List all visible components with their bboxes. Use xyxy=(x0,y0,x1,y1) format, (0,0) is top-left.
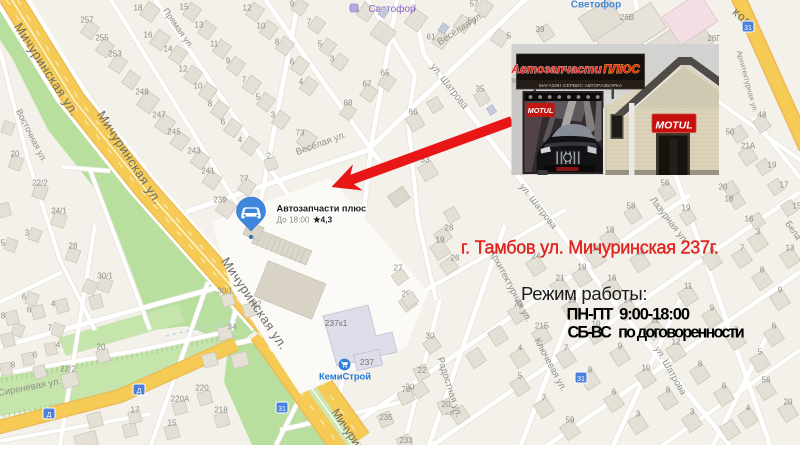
svg-text:6: 6 xyxy=(33,351,38,360)
svg-text:57: 57 xyxy=(470,0,479,9)
svg-text:10: 10 xyxy=(257,22,266,31)
svg-text:239: 239 xyxy=(213,196,227,205)
svg-text:19: 19 xyxy=(578,263,587,272)
svg-text:27: 27 xyxy=(394,264,403,273)
svg-text:218: 218 xyxy=(214,406,228,415)
svg-text:237к1: 237к1 xyxy=(325,318,348,328)
svg-text:19: 19 xyxy=(768,161,777,170)
svg-text:3: 3 xyxy=(25,229,30,238)
svg-text:4: 4 xyxy=(299,78,304,87)
svg-text:15: 15 xyxy=(793,202,800,211)
svg-text:6: 6 xyxy=(221,118,226,127)
svg-text:ПЛЮС: ПЛЮС xyxy=(603,64,640,76)
svg-text:257: 257 xyxy=(80,16,94,25)
svg-text:6: 6 xyxy=(612,388,617,397)
svg-text:★4,3: ★4,3 xyxy=(312,215,332,225)
svg-text:4: 4 xyxy=(51,300,56,309)
svg-text:5: 5 xyxy=(318,40,323,49)
svg-text:10: 10 xyxy=(642,364,651,373)
svg-text:67: 67 xyxy=(363,80,372,89)
svg-text:20: 20 xyxy=(719,183,728,192)
svg-text:30: 30 xyxy=(426,332,435,341)
svg-text:31: 31 xyxy=(744,25,752,32)
svg-text:22/2: 22/2 xyxy=(60,365,76,374)
svg-text:12: 12 xyxy=(243,4,252,13)
svg-text:24/1: 24/1 xyxy=(51,207,67,216)
svg-text:28: 28 xyxy=(69,242,78,251)
svg-text:58: 58 xyxy=(627,202,636,211)
svg-text:3: 3 xyxy=(271,111,276,120)
svg-text:18: 18 xyxy=(606,226,615,235)
svg-text:СБ-ВС по договоренности: СБ-ВС по договоренности xyxy=(568,324,744,342)
svg-text:Светофор: Светофор xyxy=(571,0,621,11)
svg-text:31: 31 xyxy=(577,376,585,383)
svg-text:77: 77 xyxy=(240,175,249,184)
svg-text:220А: 220А xyxy=(171,395,190,404)
svg-text:6: 6 xyxy=(22,293,27,302)
svg-text:30/1: 30/1 xyxy=(97,272,113,281)
svg-text:245: 245 xyxy=(167,128,181,137)
svg-text:MOTUL: MOTUL xyxy=(655,120,692,132)
svg-text:4: 4 xyxy=(56,341,61,350)
svg-text:22: 22 xyxy=(418,366,427,375)
svg-text:59: 59 xyxy=(566,416,575,425)
svg-text:8: 8 xyxy=(760,266,765,275)
svg-text:8: 8 xyxy=(208,100,213,109)
svg-text:253: 253 xyxy=(108,50,122,59)
svg-text:241: 241 xyxy=(201,167,215,176)
svg-text:26Г: 26Г xyxy=(707,34,721,43)
svg-text:10: 10 xyxy=(194,82,203,91)
svg-text:20: 20 xyxy=(11,150,20,159)
svg-text:6: 6 xyxy=(27,306,32,315)
svg-text:ПН-ПТ 9:00-18:00: ПН-ПТ 9:00-18:00 xyxy=(567,306,690,324)
svg-text:Режим работы:: Режим работы: xyxy=(521,283,647,304)
svg-text:18: 18 xyxy=(134,4,143,13)
svg-text:13: 13 xyxy=(786,244,795,253)
svg-text:243: 243 xyxy=(187,147,201,156)
svg-text:11: 11 xyxy=(684,282,693,291)
svg-text:7: 7 xyxy=(48,324,53,333)
svg-text:4: 4 xyxy=(518,344,523,353)
svg-text:19: 19 xyxy=(682,204,691,213)
svg-text:56: 56 xyxy=(661,179,670,188)
svg-text:235: 235 xyxy=(379,413,393,422)
svg-text:65: 65 xyxy=(381,69,390,78)
svg-text:8: 8 xyxy=(666,386,671,395)
svg-text:61: 61 xyxy=(427,33,436,42)
svg-text:7: 7 xyxy=(564,344,569,353)
svg-text:17: 17 xyxy=(131,406,140,415)
svg-text:8: 8 xyxy=(698,360,703,369)
svg-text:19: 19 xyxy=(436,236,445,245)
svg-text:247: 247 xyxy=(152,111,166,120)
svg-text:21А: 21А xyxy=(741,142,756,151)
svg-text:8: 8 xyxy=(1,312,6,321)
svg-text:г. Тамбов ул. Мичуринская 237г: г. Тамбов ул. Мичуринская 237г. xyxy=(461,238,719,258)
svg-text:78: 78 xyxy=(402,385,411,394)
svg-text:Д: Д xyxy=(137,388,142,395)
svg-text:21: 21 xyxy=(556,274,565,283)
svg-text:48: 48 xyxy=(758,111,767,120)
svg-text:8: 8 xyxy=(588,366,593,375)
svg-text:3: 3 xyxy=(690,408,695,417)
svg-text:4: 4 xyxy=(746,404,751,413)
svg-text:249: 249 xyxy=(135,88,149,97)
svg-text:73: 73 xyxy=(296,129,305,138)
svg-text:9: 9 xyxy=(778,286,783,295)
svg-text:68: 68 xyxy=(344,99,353,108)
svg-text:31: 31 xyxy=(278,406,286,413)
svg-text:7: 7 xyxy=(307,18,312,27)
svg-text:МАГАЗИН·СЕРВИС·АВТОРАЗБОРКА: МАГАЗИН·СЕРВИС·АВТОРАЗБОРКА xyxy=(539,83,623,89)
svg-text:2: 2 xyxy=(267,152,272,161)
svg-text:20: 20 xyxy=(97,343,106,352)
svg-text:16: 16 xyxy=(608,274,617,283)
svg-text:39: 39 xyxy=(536,25,545,34)
svg-text:13: 13 xyxy=(195,21,204,30)
svg-text:5: 5 xyxy=(1,239,6,248)
svg-text:17: 17 xyxy=(780,181,789,190)
svg-text:Д: Д xyxy=(47,412,52,419)
svg-text:Автозапчасти: Автозапчасти xyxy=(510,62,602,76)
svg-text:255: 255 xyxy=(95,34,109,43)
svg-text:6: 6 xyxy=(772,322,777,331)
svg-text:Светофор: Светофор xyxy=(368,3,415,15)
svg-text:237: 237 xyxy=(360,357,374,367)
svg-text:66: 66 xyxy=(409,108,418,117)
svg-text:8: 8 xyxy=(275,38,280,47)
svg-text:15: 15 xyxy=(180,3,189,12)
svg-text:5: 5 xyxy=(518,372,523,381)
svg-text:34: 34 xyxy=(228,323,237,332)
svg-text:Автозапчасти плюс: Автозапчасти плюс xyxy=(277,204,367,214)
svg-text:До 18:00: До 18:00 xyxy=(277,216,310,225)
svg-text:3: 3 xyxy=(330,55,335,64)
svg-text:5: 5 xyxy=(758,348,763,357)
svg-text:6: 6 xyxy=(290,58,295,67)
svg-text:5: 5 xyxy=(507,32,512,41)
svg-text:4: 4 xyxy=(238,136,243,145)
svg-text:6: 6 xyxy=(722,382,727,391)
svg-text:12: 12 xyxy=(179,65,188,74)
svg-text:28: 28 xyxy=(445,224,454,233)
svg-text:18: 18 xyxy=(725,195,734,204)
svg-text:8: 8 xyxy=(11,361,16,370)
svg-text:9: 9 xyxy=(290,0,295,9)
svg-text:9: 9 xyxy=(618,342,623,351)
svg-text:56: 56 xyxy=(762,376,771,385)
svg-text:20: 20 xyxy=(784,398,793,407)
svg-text:233: 233 xyxy=(399,436,413,445)
svg-text:16: 16 xyxy=(144,31,153,40)
svg-text:5: 5 xyxy=(256,93,261,102)
svg-text:26: 26 xyxy=(451,254,460,263)
svg-text:21Б: 21Б xyxy=(535,322,549,331)
svg-text:30/1: 30/1 xyxy=(217,287,233,296)
svg-text:9: 9 xyxy=(710,304,715,313)
svg-text:26В: 26В xyxy=(620,13,634,22)
svg-text:КемиСтрой: КемиСтрой xyxy=(319,371,371,382)
svg-text:15: 15 xyxy=(168,419,177,428)
svg-text:9: 9 xyxy=(226,57,231,66)
svg-text:50: 50 xyxy=(726,128,735,137)
svg-text:MOTUL: MOTUL xyxy=(528,106,554,115)
svg-text:16: 16 xyxy=(745,215,754,224)
svg-text:11: 11 xyxy=(210,40,219,49)
svg-text:7: 7 xyxy=(242,76,247,85)
svg-text:7: 7 xyxy=(740,244,745,253)
svg-text:35: 35 xyxy=(476,85,485,94)
svg-text:14: 14 xyxy=(164,45,173,54)
svg-text:22/2: 22/2 xyxy=(32,179,48,188)
svg-text:3: 3 xyxy=(636,410,641,419)
svg-text:7: 7 xyxy=(542,394,547,403)
svg-text:220: 220 xyxy=(195,384,209,393)
